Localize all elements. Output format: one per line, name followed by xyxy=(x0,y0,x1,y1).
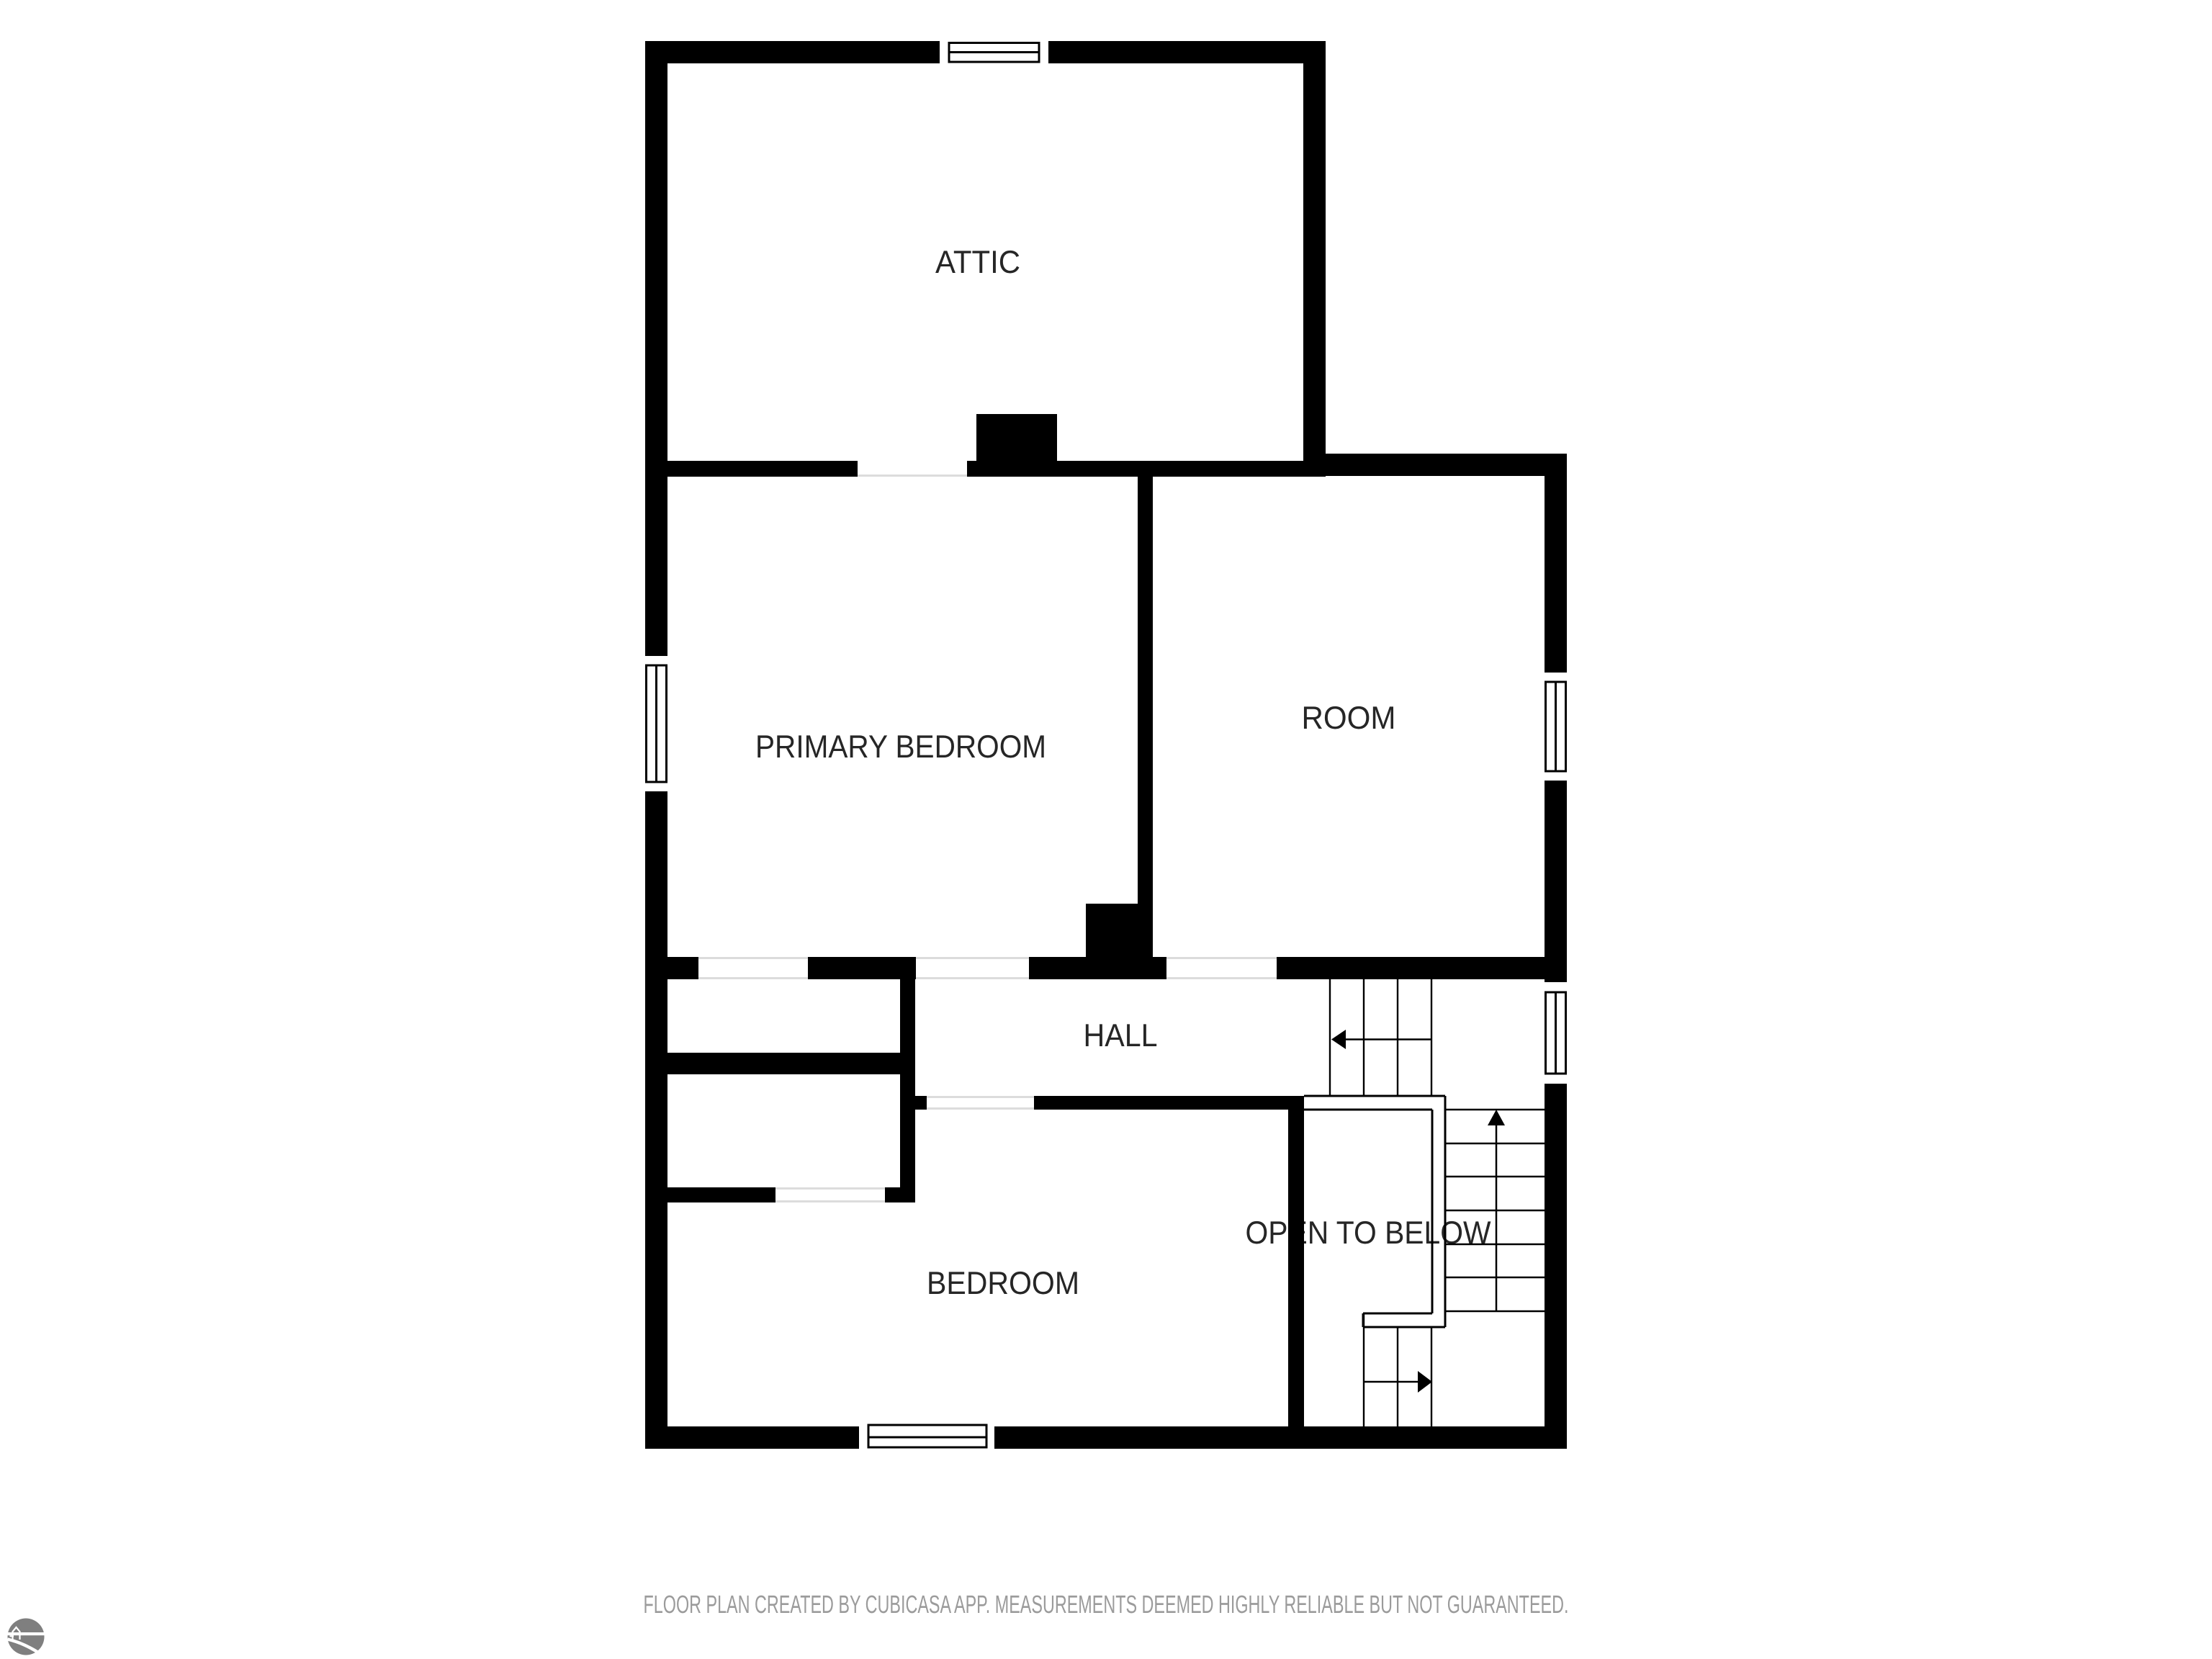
svg-text:FLOOR PLAN CREATED BY CUBICASA: FLOOR PLAN CREATED BY CUBICASA APP. MEAS… xyxy=(644,1591,1569,1619)
svg-text:HALL: HALL xyxy=(1084,1018,1158,1053)
svg-text:ROOM: ROOM xyxy=(1302,701,1396,736)
svg-text:BEDROOM: BEDROOM xyxy=(927,1266,1079,1301)
svg-text:OPEN TO BELOW: OPEN TO BELOW xyxy=(1246,1215,1491,1251)
svg-text:PRIMARY BEDROOM: PRIMARY BEDROOM xyxy=(755,729,1046,765)
svg-text:ATTIC: ATTIC xyxy=(935,245,1020,280)
